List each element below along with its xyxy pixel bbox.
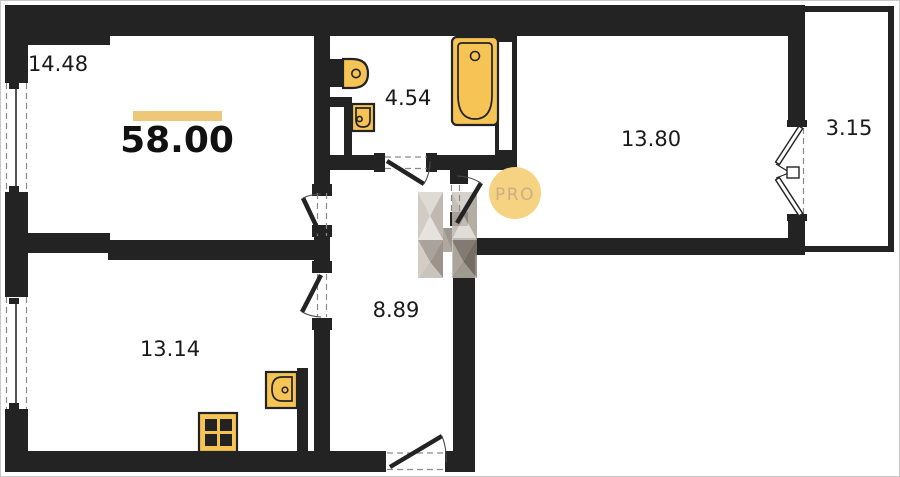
window-sill-mark xyxy=(9,186,19,192)
casement-leaf xyxy=(776,177,803,216)
door-post xyxy=(374,153,385,172)
toilet-tank xyxy=(327,59,343,87)
casement-leaf xyxy=(776,126,803,165)
door-kitchen xyxy=(302,274,327,317)
door-entrance xyxy=(387,436,446,470)
pro-badge: PRO xyxy=(489,167,541,219)
stove-icon xyxy=(199,413,237,452)
toilet-button xyxy=(352,69,360,77)
window-kitchen xyxy=(7,297,27,409)
door-post xyxy=(312,318,332,330)
floor-plan: 58.00 14.48 4.54 13.80 3.15 8.89 13.14 P… xyxy=(0,0,900,477)
door-post xyxy=(312,261,332,273)
kitchen-sink-icon xyxy=(266,372,297,408)
room-area-balcony: 3.15 xyxy=(826,116,873,140)
door-leaf xyxy=(387,161,424,184)
window-sill-mark xyxy=(9,298,19,304)
window-sill-mark xyxy=(787,120,807,127)
casement-leaf-bottom xyxy=(776,177,803,216)
room-area-living-room: 14.48 xyxy=(28,52,88,76)
bathtub-drain xyxy=(471,52,480,61)
wall-top xyxy=(5,5,795,36)
room-area-bathroom: 4.54 xyxy=(385,86,432,110)
door-post xyxy=(376,451,386,472)
door-bathroom xyxy=(385,157,430,184)
casement-leaf-top xyxy=(776,126,803,165)
window-living-room xyxy=(7,83,27,192)
wall-balcony-top xyxy=(795,6,894,12)
stove-burner xyxy=(220,434,232,446)
bathtub-icon xyxy=(452,37,498,125)
pro-badge-text: PRO xyxy=(495,185,535,205)
wall-interior-a-lower xyxy=(314,318,330,472)
toilet-icon xyxy=(327,59,368,88)
room-area-kitchen: 13.14 xyxy=(140,337,200,361)
total-area-label: 58.00 xyxy=(120,120,234,161)
wall-left-a xyxy=(5,36,28,83)
balcony-door xyxy=(776,126,804,216)
duct-shaft xyxy=(499,42,512,150)
wall-balcony-bottom xyxy=(795,246,894,252)
window-handle xyxy=(787,167,799,178)
stove-burner xyxy=(205,419,217,431)
door-post xyxy=(426,153,437,172)
window-sill-mark xyxy=(787,214,807,221)
window-sill-mark xyxy=(9,83,19,89)
stove-outline xyxy=(199,413,237,452)
window-sill-mark xyxy=(9,403,19,409)
wall-bedroom-bottom xyxy=(455,238,805,255)
room-area-hallway: 8.89 xyxy=(373,298,420,322)
door-leaf xyxy=(390,436,442,467)
wall-balcony-divider-top xyxy=(788,5,805,125)
door-leaf xyxy=(302,275,321,312)
wall-room-divider-left xyxy=(28,233,110,253)
washbasin-icon xyxy=(352,104,374,131)
bathtub-outline xyxy=(452,37,498,125)
wall-toilet-partition-v xyxy=(344,105,352,157)
wall-kitchen-stub xyxy=(297,368,308,472)
wall-balcony-right xyxy=(888,6,894,252)
door-swing-arc xyxy=(302,312,321,317)
wall-top-step xyxy=(28,36,110,45)
room-area-bedroom: 13.80 xyxy=(621,127,681,151)
wall-left-b xyxy=(5,192,28,297)
stove-burner xyxy=(220,419,232,431)
stove-burner xyxy=(205,434,217,446)
washbasin-drain xyxy=(357,116,362,121)
wall-room-divider-right xyxy=(108,240,330,260)
kitchen-sink-drain xyxy=(282,387,288,393)
